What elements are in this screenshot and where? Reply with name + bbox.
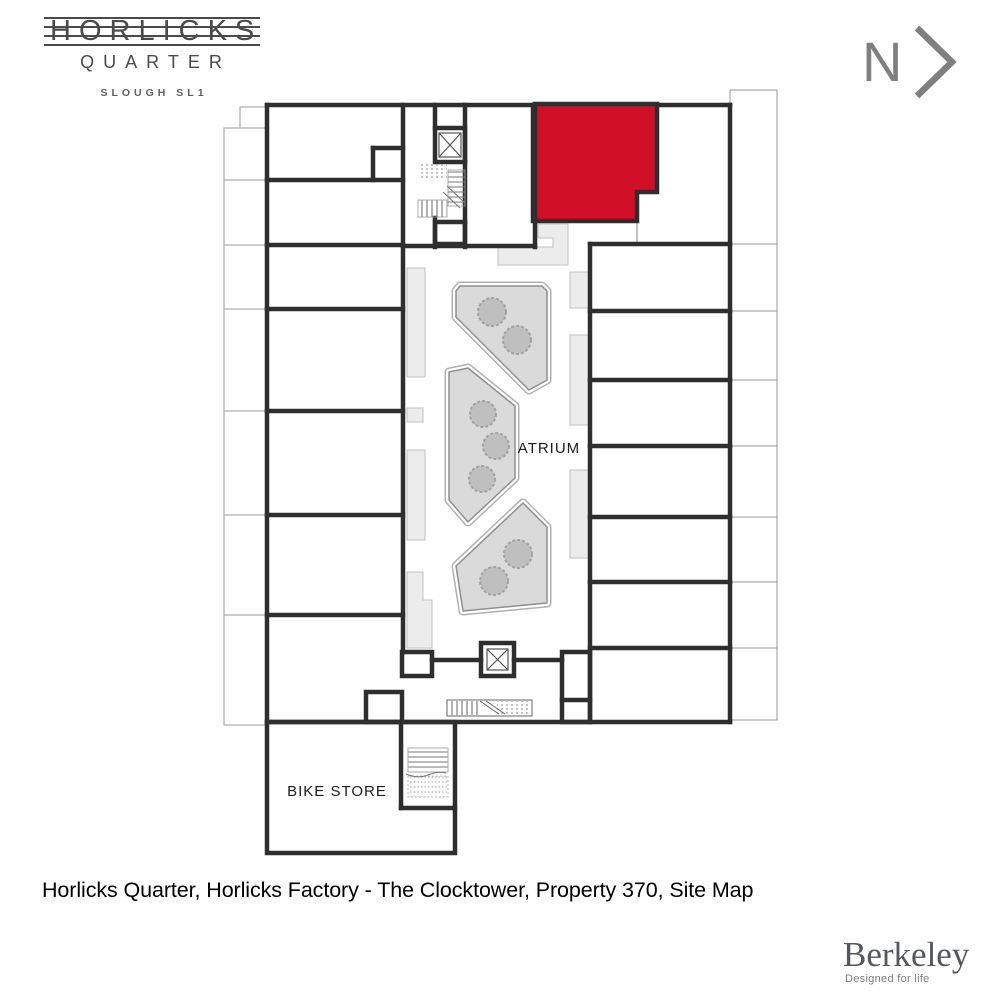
bike-store-label: BIKE STORE xyxy=(287,783,387,800)
stairs-bike-store-icon xyxy=(406,748,448,797)
planter-middle xyxy=(449,368,515,522)
tree xyxy=(470,401,496,427)
page: HORLICKS QUARTER SLOUGH SL1 N xyxy=(0,0,1000,1000)
right-balcony xyxy=(730,90,777,720)
left-balcony xyxy=(224,128,267,725)
stairs-bottom-corridor-icon xyxy=(447,700,532,716)
tree xyxy=(469,466,495,492)
tree xyxy=(478,298,506,326)
atrium-label: ATRIUM xyxy=(518,440,580,457)
plan-caption: Horlicks Quarter, Horlicks Factory - The… xyxy=(42,878,753,903)
highlighted-unit-property-370[interactable] xyxy=(535,104,657,221)
left-balcony-step xyxy=(240,107,267,128)
brand-name: Berkeley xyxy=(843,936,969,974)
tree xyxy=(504,540,532,568)
site-plan: #plan-svg circle{fill:#bfbfbf;stroke:#a2… xyxy=(0,0,1000,1000)
brand-tagline: Designed for life xyxy=(845,973,969,985)
tree xyxy=(503,326,531,354)
tree xyxy=(480,567,508,595)
stairs-top-core-icon xyxy=(418,162,465,217)
tree xyxy=(483,433,509,459)
berkeley-logo: Berkeley Designed for life xyxy=(843,936,969,985)
